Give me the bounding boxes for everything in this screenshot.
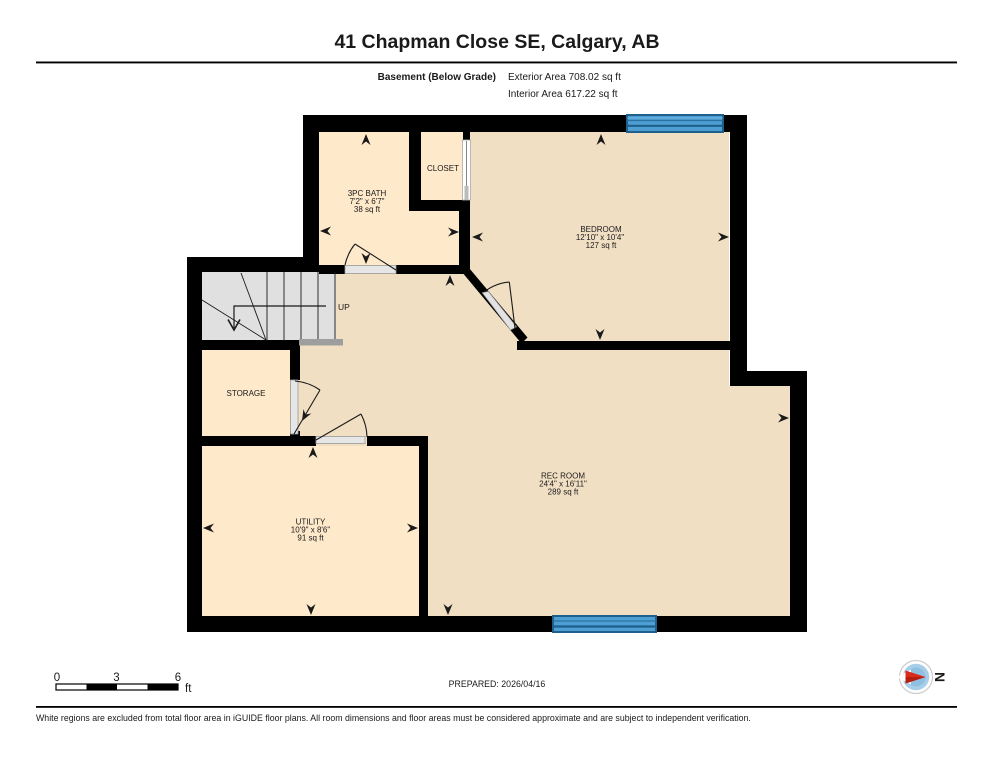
svg-text:STORAGE: STORAGE	[227, 389, 266, 398]
svg-text:CLOSET: CLOSET	[427, 164, 459, 173]
svg-text:N: N	[932, 672, 948, 682]
svg-text:0: 0	[54, 672, 60, 684]
svg-text:289 sq ft: 289 sq ft	[548, 488, 579, 497]
svg-text:127 sq ft: 127 sq ft	[586, 241, 617, 250]
svg-text:Exterior Area 708.02 sq ft: Exterior Area 708.02 sq ft	[508, 72, 621, 83]
svg-text:UP: UP	[338, 302, 350, 312]
svg-text:38 sq ft: 38 sq ft	[354, 205, 381, 214]
svg-text:Interior Area 617.22 sq ft: Interior Area 617.22 sq ft	[508, 89, 618, 100]
svg-text:Basement (Below Grade): Basement (Below Grade)	[378, 72, 496, 83]
svg-text:3: 3	[113, 672, 119, 684]
svg-text:6: 6	[175, 672, 181, 684]
svg-text:PREPARED: 2026/04/16: PREPARED: 2026/04/16	[449, 679, 546, 689]
svg-text:91 sq ft: 91 sq ft	[297, 534, 324, 543]
svg-text:ft: ft	[185, 683, 192, 695]
svg-text:White regions are excluded fro: White regions are excluded from total fl…	[36, 713, 751, 723]
svg-text:41 Chapman Close SE, Calgary,: 41 Chapman Close SE, Calgary, AB	[334, 31, 659, 53]
